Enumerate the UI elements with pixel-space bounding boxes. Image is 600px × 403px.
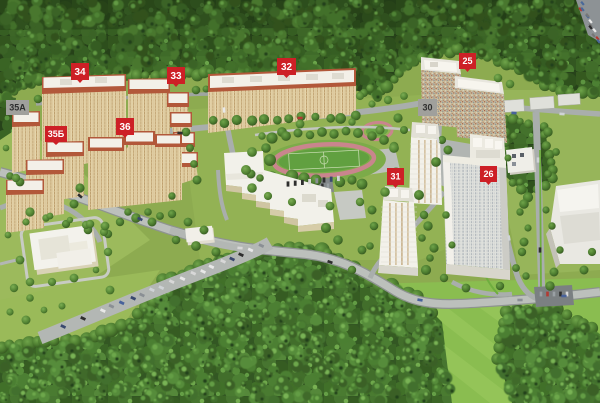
svg-text:35Б: 35Б	[48, 129, 65, 139]
svg-text:36: 36	[119, 122, 131, 133]
svg-text:34: 34	[74, 67, 86, 78]
svg-text:30: 30	[422, 103, 432, 113]
svg-text:25: 25	[462, 56, 472, 66]
svg-text:33: 33	[170, 71, 182, 82]
svg-text:26: 26	[483, 169, 493, 179]
svg-text:35А: 35А	[9, 103, 26, 113]
svg-text:32: 32	[281, 62, 293, 73]
svg-text:31: 31	[390, 172, 400, 182]
